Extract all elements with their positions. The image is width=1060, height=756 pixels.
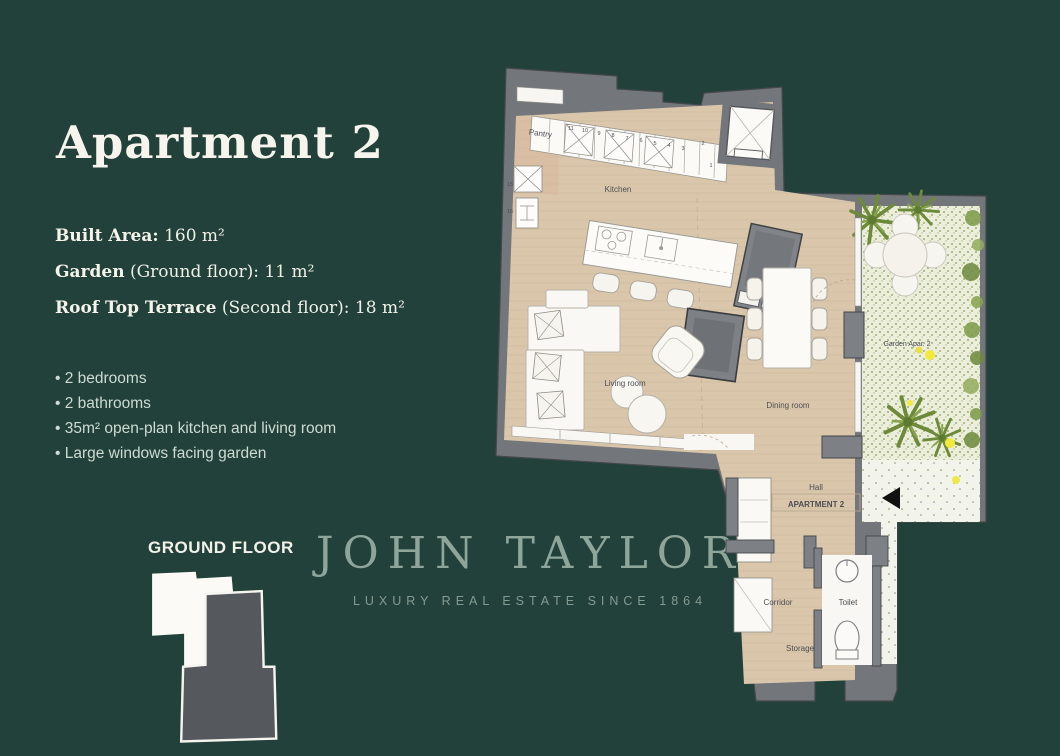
spec-garden: Garden (Ground floor): 11 m² xyxy=(55,262,405,283)
spec-value: 160 m² xyxy=(159,226,225,246)
brochure-page: Apartment 2 Built Area: 160 m² Garden (G… xyxy=(0,0,1060,756)
toilet-room xyxy=(822,555,872,665)
spec-label: Built Area: xyxy=(55,226,159,246)
spec-label: Roof Top Terrace xyxy=(55,298,217,318)
cabinet-number: 16 xyxy=(507,209,513,215)
spec-list: Built Area: 160 m² Garden (Ground floor)… xyxy=(55,226,405,334)
ground-floor-label: GROUND FLOOR xyxy=(148,538,294,558)
cabinet-number: 15 xyxy=(507,182,513,188)
cabinet-number: 2 xyxy=(701,141,704,147)
sofa-cushions xyxy=(533,310,565,419)
toilet-label: Toilet xyxy=(839,598,858,607)
dining-table xyxy=(763,268,811,368)
feature-item: Large windows facing garden xyxy=(55,441,336,466)
cabinet-number: 1 xyxy=(709,163,712,169)
dining-room-label: Dining room xyxy=(766,401,809,410)
cabinet-number: 6 xyxy=(639,138,642,144)
corridor-label: Corridor xyxy=(764,598,793,607)
storage-label: Storage xyxy=(786,644,815,653)
spec-built-area: Built Area: 160 m² xyxy=(55,226,405,247)
floor-plan: Pantry Kitchen Living room Dining room G… xyxy=(470,50,990,756)
spec-roof-terrace: Roof Top Terrace (Second floor): 18 m² xyxy=(55,298,405,319)
cabinet-number: 8 xyxy=(611,133,614,139)
cabinet-number: 10 xyxy=(582,128,588,134)
spec-label: Garden xyxy=(55,262,125,282)
page-title: Apartment 2 xyxy=(56,116,384,169)
garden-label: Garden Apar. 2 xyxy=(883,341,930,348)
feature-item: 35m² open-plan kitchen and living room xyxy=(55,416,336,441)
ground-floor-thumbnail xyxy=(140,562,300,756)
spec-value: (Second floor): 18 m² xyxy=(217,298,405,318)
cabinet-number: 7 xyxy=(625,136,628,142)
feature-item: 2 bedrooms xyxy=(55,366,336,391)
cabinet-number: 3 xyxy=(681,146,684,152)
living-room-label: Living room xyxy=(604,379,646,388)
spec-value: (Ground floor): 11 m² xyxy=(125,262,315,282)
kitchen-label: Kitchen xyxy=(605,185,632,194)
cabinet-number: 4 xyxy=(667,143,670,149)
cabinet-number: 9 xyxy=(597,131,600,137)
toilet-fixture xyxy=(835,621,859,659)
cabinet-number: 5 xyxy=(653,141,656,147)
wall-window-notch xyxy=(517,87,563,104)
elevator xyxy=(717,100,780,169)
feature-item: 2 bathrooms xyxy=(55,391,336,416)
feature-list: 2 bedrooms 2 bathrooms 35m² open-plan ki… xyxy=(55,366,336,466)
hall-label: Hall xyxy=(809,483,823,492)
cabinet-number: 11 xyxy=(568,126,574,132)
hall-doorway xyxy=(684,434,754,450)
apartment-label: APARTMENT 2 xyxy=(788,500,845,509)
